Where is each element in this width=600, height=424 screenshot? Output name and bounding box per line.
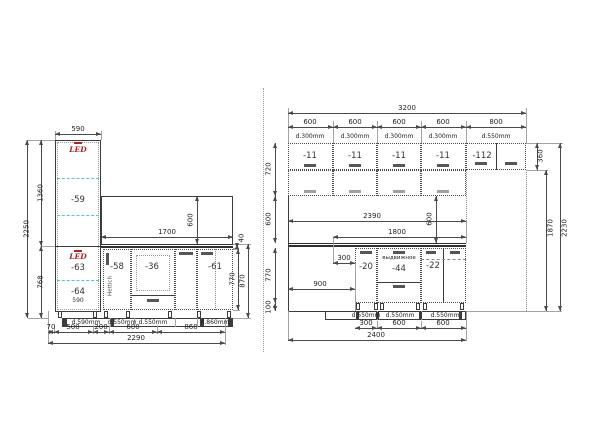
dim-line (333, 237, 466, 238)
dim-arrow (535, 165, 539, 170)
dim-text: 2230 (562, 219, 569, 237)
dim-text: 1870 (548, 219, 555, 237)
dim-arrow (461, 235, 466, 239)
ext (466, 221, 467, 243)
dim-text: 600 (427, 212, 434, 225)
cabinet-label: -59 (71, 196, 85, 205)
dim-text: 2290 (127, 335, 145, 342)
dim-line (288, 221, 466, 222)
dim-arrow (246, 313, 250, 318)
dw-handle (179, 252, 193, 255)
dim-arrow (333, 235, 338, 239)
dim-arrow (535, 143, 539, 148)
dim-arrow (521, 111, 526, 115)
dim-line (197, 196, 198, 244)
fridge-cab-split (496, 143, 497, 170)
dim-arrow (421, 326, 426, 330)
cabinet-foot (93, 311, 97, 318)
cabinet-label: -63 (71, 264, 85, 273)
dim-arrow (157, 330, 162, 334)
c44-divider (377, 282, 421, 283)
c58-handle (106, 253, 109, 265)
dim-text: 600 (436, 119, 449, 126)
cabinet-label: -58 (110, 263, 124, 272)
dim-text: 40 (239, 234, 246, 243)
shelf-handle (349, 190, 361, 193)
countertop (288, 243, 466, 247)
cabinet-foot (423, 303, 427, 310)
dim-text: 770 (230, 272, 237, 285)
dim-arrow (544, 306, 548, 311)
inner-width-label: 590 (72, 298, 83, 304)
dim-arrow (288, 287, 293, 291)
glass-shelf-line (57, 280, 99, 281)
dim-arrow (55, 132, 60, 136)
depth-label: d.300mm (296, 134, 325, 140)
drawer-handle (147, 299, 159, 302)
wall-handle (393, 164, 405, 167)
dim-text: 360 (538, 149, 545, 162)
dim-arrow (434, 238, 438, 243)
dim-text: 600 (126, 324, 139, 331)
dim-line (546, 170, 547, 311)
cabinet-foot (197, 311, 201, 318)
dim-arrow (273, 143, 277, 148)
opening-box (101, 196, 233, 247)
dim-text: 300 (337, 255, 350, 262)
ext (233, 310, 240, 311)
dim-arrow (288, 338, 293, 342)
dim-arrow (461, 219, 466, 223)
dim-line (248, 244, 249, 318)
dim-arrow (25, 313, 29, 318)
shelf-handle (437, 190, 449, 193)
dim-arrow (377, 326, 382, 330)
depth-label: d.300mm (385, 134, 414, 140)
drawer-note: выдвижное (382, 256, 416, 262)
dim-arrow (461, 338, 466, 342)
dim-arrow (220, 341, 225, 345)
cabinet-label: -112 (472, 152, 491, 161)
dim-text: 100 (266, 300, 273, 313)
dim-text: 800 (489, 119, 502, 126)
c22-door-split (443, 248, 444, 303)
dim-arrow (246, 244, 250, 249)
dim-text: 768 (38, 275, 45, 288)
cabinet-foot (227, 311, 231, 318)
dim-arrow (558, 306, 562, 311)
dim-text: 600 (348, 119, 361, 126)
dim-text: 870 (240, 274, 247, 287)
glass-shelf-line (57, 215, 99, 216)
dim-arrow (544, 170, 548, 175)
fridge-cab-handle (475, 162, 487, 165)
c44-handle (393, 251, 405, 254)
dim-arrow (54, 330, 59, 334)
cabinet-foot (460, 303, 464, 310)
dim-arrow (236, 305, 240, 310)
cabinet-36-panel (136, 255, 170, 291)
dim-line (377, 328, 421, 329)
cabinet-foot (168, 311, 172, 318)
dim-arrow (96, 132, 101, 136)
dim-text: 2400 (367, 332, 385, 339)
dim-text: 1360 (38, 184, 45, 202)
cabinet-20-box (355, 248, 377, 303)
cabinet-label: -11 (436, 152, 450, 161)
dim-arrow (101, 235, 106, 239)
cabinet-foot (126, 311, 130, 318)
dim-arrow (288, 125, 293, 129)
ext (466, 311, 562, 312)
dim-text: 3200 (398, 105, 416, 112)
dim-line (275, 248, 276, 303)
kitchen-elevation-drawing: LED-59LED-63-64590-58Hettich-36-61d.590m… (0, 0, 600, 424)
c61-handle (201, 252, 213, 255)
ext (466, 311, 467, 341)
c22-handle (450, 251, 460, 254)
ext (333, 237, 334, 264)
dim-arrow (421, 125, 426, 129)
led-label: LED (69, 146, 87, 154)
dim-arrow (228, 235, 233, 239)
cabinet-label: -64 (71, 288, 85, 297)
depth-label: d.860mm (201, 320, 230, 326)
dim-text: 900 (313, 281, 326, 288)
dim-text: 1700 (158, 229, 176, 236)
ext (526, 108, 527, 143)
dim-line (55, 134, 101, 135)
glass-shelf-line (57, 178, 99, 179)
dim-arrow (109, 330, 114, 334)
dim-text: 770 (266, 268, 273, 281)
dim-text: 600 (436, 320, 449, 327)
dim-text: 2250 (24, 220, 31, 238)
dim-line (101, 237, 233, 238)
cabinet-foot (416, 303, 420, 310)
c61-door-split (215, 249, 217, 310)
tall-divider (55, 246, 101, 247)
dim-text: 600 (266, 212, 273, 225)
dim-text: 500 (66, 324, 79, 331)
depth-label: d.300mm (429, 134, 458, 140)
cabinet-foot (374, 303, 378, 310)
dim-text: 600 (303, 119, 316, 126)
dim-arrow (25, 140, 29, 145)
cabinet-label: -36 (145, 263, 159, 272)
fridge-cab-handle (505, 162, 517, 165)
c22-dash (421, 259, 466, 260)
wall-handle (304, 164, 316, 167)
led-mark (74, 142, 82, 144)
dim-arrow (273, 306, 277, 311)
wall-handle (349, 164, 361, 167)
dim-text: 1800 (388, 229, 406, 236)
dim-arrow (288, 111, 293, 115)
countertop (101, 244, 233, 248)
cabinet-foot (58, 311, 62, 318)
dim-arrow (235, 243, 239, 248)
cabinet-label: -11 (392, 152, 406, 161)
dim-line (288, 289, 355, 290)
dim-arrow (39, 313, 43, 318)
dim-line (275, 196, 276, 243)
dim-line (421, 328, 466, 329)
cabinet-label: -44 (392, 265, 406, 274)
dim-arrow (434, 196, 438, 201)
c44-handle (393, 285, 405, 288)
dim-line (288, 127, 333, 128)
dim-text: 2390 (363, 213, 381, 220)
ext (233, 318, 251, 319)
c20-handle (360, 251, 372, 254)
cabinet-dw-box (175, 249, 197, 310)
dim-arrow (333, 125, 338, 129)
dim-arrow (466, 125, 471, 129)
band-tick (175, 318, 176, 327)
dim-arrow (39, 246, 43, 251)
led-label: LED (69, 253, 87, 261)
dim-text: 300 (359, 320, 372, 327)
wall-handle (437, 164, 449, 167)
dim-text: 600 (392, 119, 405, 126)
tall-cabinet-inner (57, 142, 99, 310)
band-foot (419, 312, 422, 319)
dim-arrow (288, 219, 293, 223)
dim-arrow (236, 249, 240, 254)
ext (288, 311, 289, 341)
dim-text: 860 (184, 324, 197, 331)
dim-text: 720 (266, 162, 273, 175)
cabinet-foot (104, 311, 108, 318)
dim-arrow (377, 125, 382, 129)
dim-line (288, 340, 466, 341)
dim-text: 600 (188, 213, 195, 226)
hinge-note: Hettich (108, 276, 114, 296)
cabinet-foot (380, 303, 384, 310)
depth-label: d.300mm (341, 134, 370, 140)
dim-arrow (273, 238, 277, 243)
depth-label: d.550mm (482, 134, 511, 140)
dim-arrow (220, 330, 225, 334)
dim-line (421, 127, 466, 128)
cabinet-foot (356, 303, 360, 310)
cabinet-label: -20 (359, 263, 373, 272)
dim-arrow (273, 248, 277, 253)
dim-arrow (195, 196, 199, 201)
dim-line (275, 143, 276, 196)
dim-line (333, 127, 377, 128)
cabinet-label: -11 (303, 152, 317, 161)
dim-arrow (195, 239, 199, 244)
dim-line (48, 343, 225, 344)
drawer-divider (131, 295, 175, 296)
dim-line (288, 113, 526, 114)
cabinet-label: -61 (208, 263, 222, 272)
ext (28, 318, 48, 319)
cabinet-label: -11 (348, 152, 362, 161)
dim-line (377, 127, 421, 128)
floor-line (288, 311, 325, 312)
ext (41, 246, 55, 247)
dim-text: 200 (94, 324, 107, 331)
dim-line (109, 332, 157, 333)
c22-handle (426, 251, 436, 254)
dim-line (466, 127, 526, 128)
dim-line (157, 332, 225, 333)
dim-arrow (39, 140, 43, 145)
cabinet-label: -22 (426, 262, 440, 271)
dim-text: 600 (392, 320, 405, 327)
dim-arrow (273, 196, 277, 201)
dim-arrow (521, 125, 526, 129)
dim-line (436, 196, 437, 243)
dim-arrow (461, 326, 466, 330)
dim-arrow (558, 143, 562, 148)
dim-arrow (350, 287, 355, 291)
depth-label: d.550mm (139, 320, 168, 326)
niche-edge (526, 170, 528, 311)
shelf-handle (304, 190, 316, 193)
wall-line (288, 196, 289, 311)
dim-arrow (48, 341, 53, 345)
dim-text: 590 (71, 126, 84, 133)
dim-arrow (350, 261, 355, 265)
shelf-handle (393, 190, 405, 193)
ext (101, 131, 102, 140)
ext (355, 289, 356, 311)
